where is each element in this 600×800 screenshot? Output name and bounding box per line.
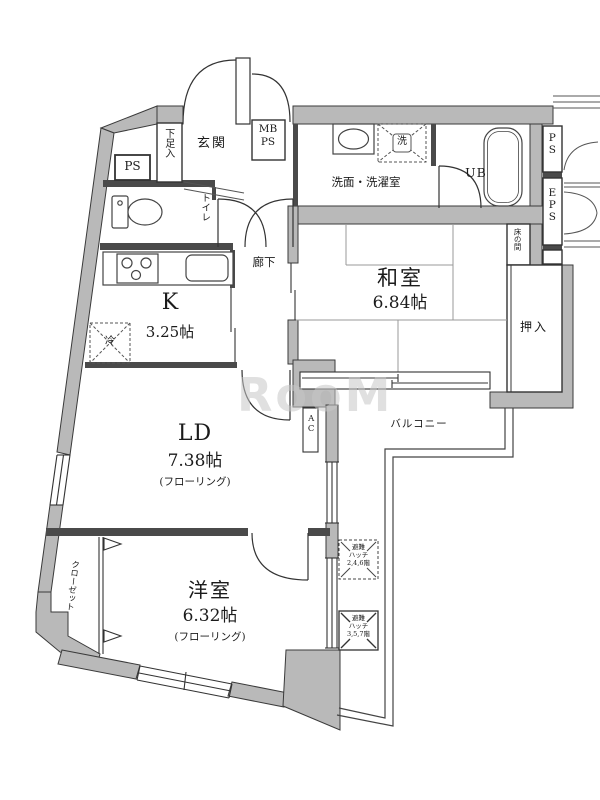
basin-fixture <box>333 124 374 154</box>
windows <box>50 263 490 698</box>
unit-bath-label: UB <box>462 166 490 180</box>
living-dining-label: LD <box>163 422 227 446</box>
western-room-size-label: 6.32帖 <box>168 607 252 625</box>
kitchen-size-label: 3.25帖 <box>128 324 212 340</box>
closet-door <box>99 537 121 654</box>
tokonoma-label: 床の間 <box>513 228 521 251</box>
living-dining-size-label: 7.38帖 <box>146 452 244 470</box>
floor-plan: RooM PS 下足入 玄関 MB PS 洗面・洗濯室 洗 UB PS EPS … <box>0 0 600 800</box>
entrance-label: 玄関 <box>184 137 240 151</box>
kitchen-label: K <box>146 291 194 315</box>
japanese-room-label: 和室 <box>364 267 436 290</box>
ps-right-label: PS <box>546 132 557 156</box>
escape-hatch-upper-label: 避難 ハッチ 2,4,6階 <box>339 544 378 567</box>
washer-symbol-label: 洗 <box>394 137 410 148</box>
eps-label: EPS <box>546 187 557 223</box>
escape-hatch-lower-label: 避難 ハッチ 3,5,7階 <box>339 615 378 638</box>
western-room-label: 洋室 <box>176 580 244 602</box>
toilet-fixture <box>112 196 162 228</box>
japanese-room-size-label: 6.84帖 <box>358 294 442 312</box>
oshiire-label: 押入 <box>510 321 558 334</box>
living-dining-flooring-label: (フローリング) <box>140 477 250 488</box>
refrigerator-label: 冷 <box>100 337 120 348</box>
balcony-label: バルコニー <box>383 419 455 430</box>
corridor-label: 廊下 <box>245 256 283 268</box>
ps-entrance-label: PS <box>115 160 150 173</box>
kitchen-counter <box>103 252 233 285</box>
ac-label: AC <box>306 414 315 434</box>
meter-box-label: MB PS <box>251 123 285 149</box>
western-room-flooring-label: (フローリング) <box>152 632 268 643</box>
toilet-label: トイレ <box>199 193 209 222</box>
washroom-label: 洗面・洗濯室 <box>308 176 424 188</box>
shoe-cabinet-label: 下足入 <box>162 128 173 158</box>
